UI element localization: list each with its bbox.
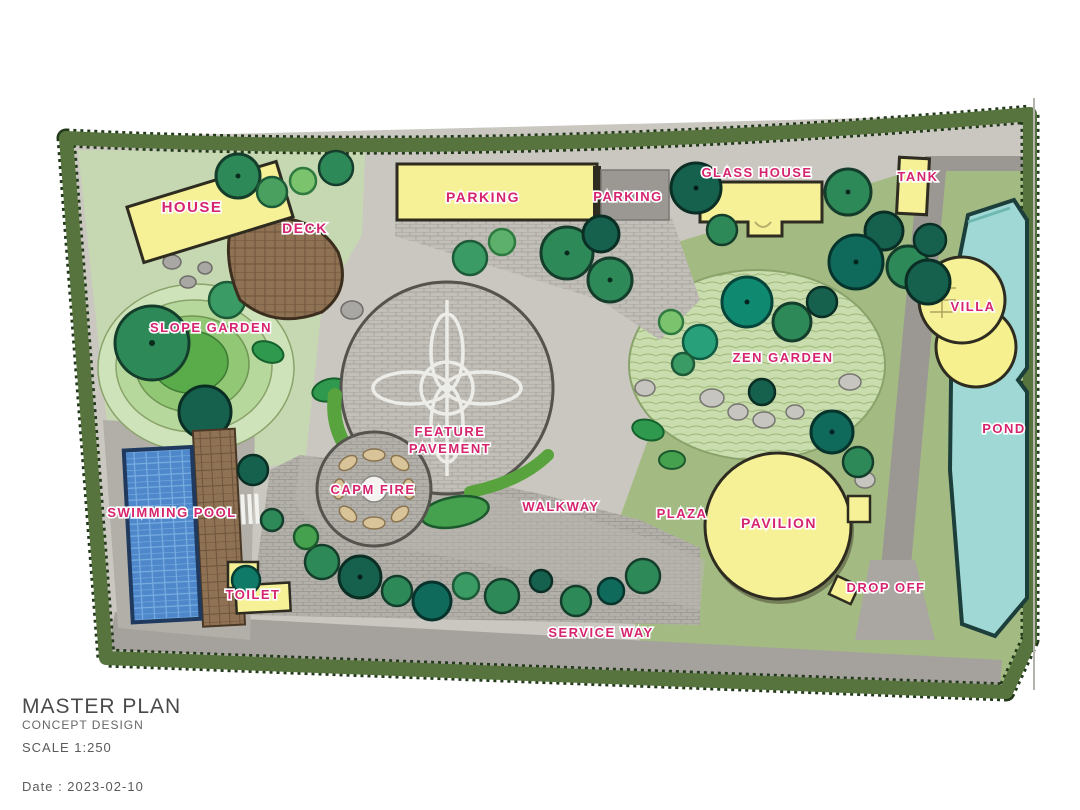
label-pavilion: PAVILION — [741, 515, 817, 531]
label-glass-house: GLASS HOUSE — [701, 165, 812, 180]
label-villa: VILLA — [950, 299, 995, 314]
master-plan-drawing: HOUSE DECK PARKING PARKING GLASS HOUSE T… — [0, 0, 1080, 810]
label-plaza: PLAZA — [657, 506, 708, 521]
label-feature-pavement-2: PAVEMENT — [409, 441, 491, 456]
label-walkway: WALKWAY — [522, 499, 599, 514]
label-swimming-pool: SWIMMING POOL — [107, 505, 236, 520]
label-camp-fire: CAPM FIRE — [331, 482, 416, 497]
label-feature-pavement-1: FEATURE — [415, 424, 486, 439]
tank — [897, 157, 930, 214]
label-drop-off: DROP OFF — [847, 580, 926, 595]
label-deck: DECK — [282, 220, 328, 236]
label-zen-garden: ZEN GARDEN — [733, 350, 834, 365]
label-slope-garden: SLOPE GARDEN — [150, 320, 272, 335]
label-pond: POND — [982, 421, 1026, 436]
label-tank: TANK — [897, 169, 938, 184]
label-service-way: SERVICE WAY — [548, 625, 653, 640]
label-parking-small: PARKING — [593, 189, 662, 204]
sheet-date: Date : 2023-02-10 — [22, 779, 181, 794]
title-block: MASTER PLAN CONCEPT DESIGN SCALE 1:250 D… — [22, 696, 181, 794]
sheet-subtitle: CONCEPT DESIGN — [22, 718, 181, 732]
label-toilet: TOILET — [226, 587, 281, 602]
sheet-scale: SCALE 1:250 — [22, 740, 181, 755]
label-house: HOUSE — [162, 199, 223, 216]
pool-water — [124, 447, 201, 622]
master-plan-sheet: HOUSE DECK PARKING PARKING GLASS HOUSE T… — [0, 0, 1080, 810]
label-parking-main: PARKING — [446, 189, 520, 205]
top-right-road — [925, 156, 1028, 171]
sheet-title: MASTER PLAN — [22, 696, 181, 717]
